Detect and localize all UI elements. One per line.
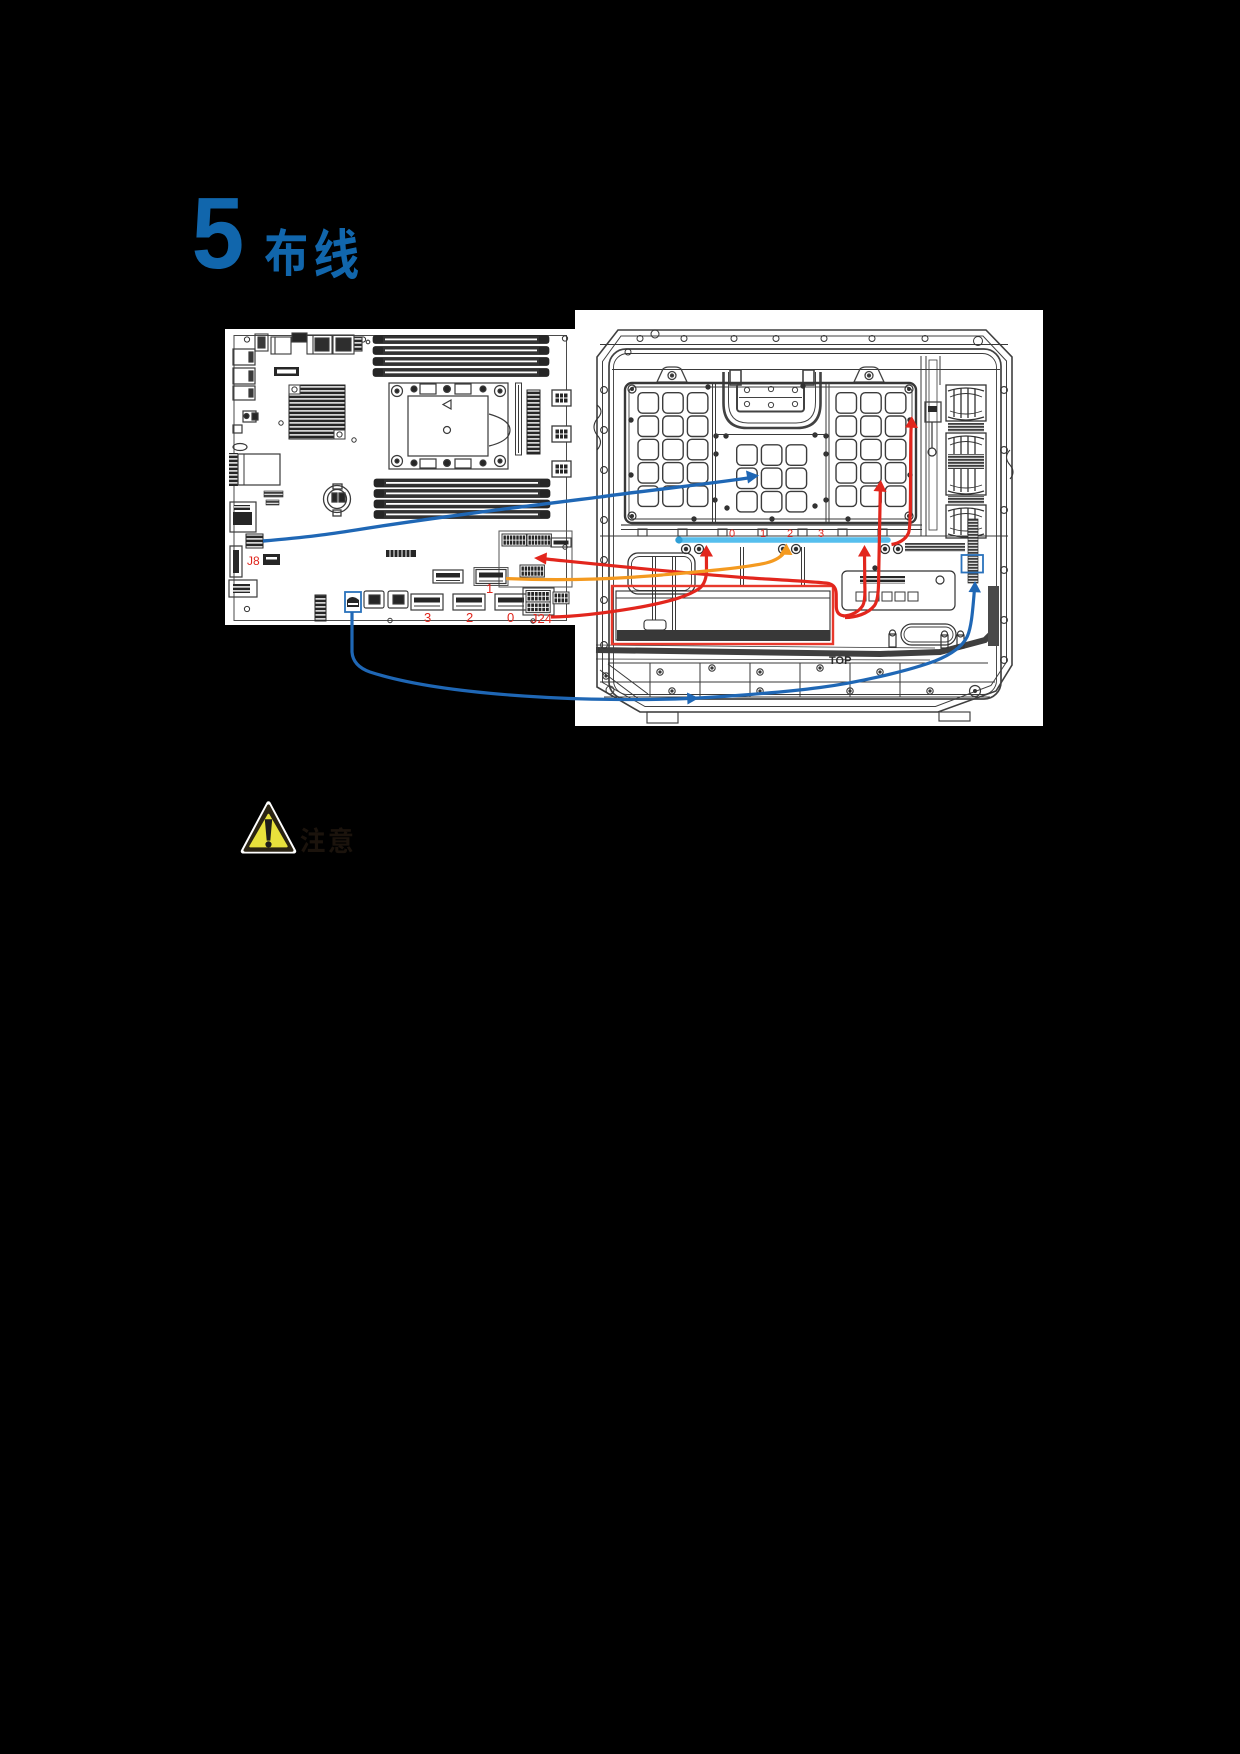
- svg-text:0: 0: [507, 610, 514, 625]
- svg-text:1: 1: [760, 528, 766, 540]
- svg-text:5: 5: [192, 176, 245, 290]
- svg-text:1: 1: [486, 581, 493, 596]
- svg-text:0: 0: [729, 528, 735, 540]
- svg-text:3: 3: [424, 610, 431, 625]
- svg-text:J8: J8: [247, 554, 260, 568]
- svg-text:3: 3: [818, 528, 824, 540]
- svg-text:2: 2: [466, 610, 473, 625]
- svg-text:2: 2: [787, 528, 793, 540]
- svg-text:J24: J24: [531, 611, 552, 626]
- svg-text:TOP: TOP: [829, 655, 851, 667]
